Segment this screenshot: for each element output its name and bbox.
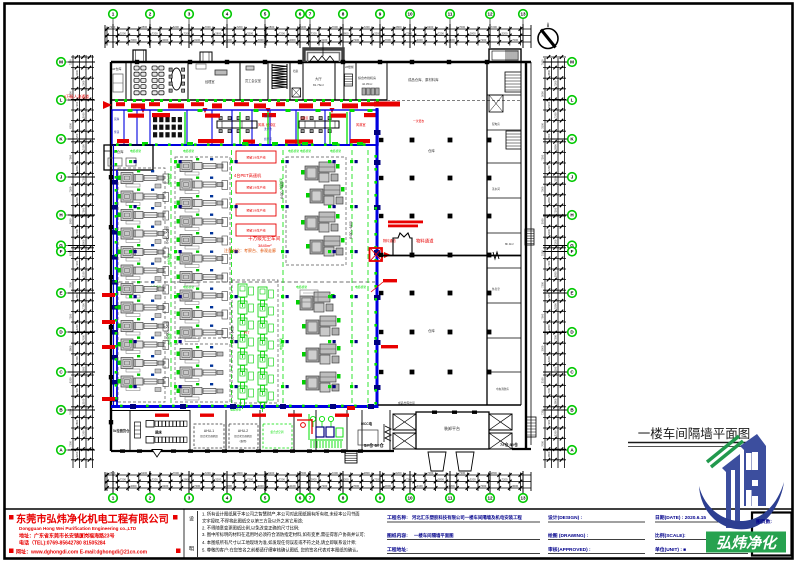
svg-text:5: 5 (264, 12, 267, 17)
svg-text:7200: 7200 (184, 32, 190, 36)
svg-text:2800: 2800 (547, 69, 551, 75)
svg-text:6200: 6200 (547, 228, 551, 234)
svg-text:比例(SCALE):: 比例(SCALE): (655, 532, 686, 539)
svg-text:2800: 2800 (69, 345, 73, 351)
svg-text:7200: 7200 (541, 281, 545, 287)
svg-text:7000: 7000 (300, 471, 306, 475)
svg-text:J: J (60, 175, 63, 180)
svg-text:7200: 7200 (332, 471, 338, 475)
svg-text:地址：广东省东莞市长安镇厦岗福海路23号: 地址：广东省东莞市长安镇厦岗福海路23号 (19, 533, 115, 540)
svg-text:传递: 传递 (114, 130, 120, 134)
svg-text:7200: 7200 (247, 478, 253, 482)
svg-text:2800: 2800 (215, 32, 221, 36)
svg-text:3200: 3200 (554, 175, 558, 181)
svg-text:电缆桥架: 电缆桥架 (296, 285, 307, 289)
svg-text:审核(APPROVED) :: 审核(APPROVED) : (548, 546, 591, 553)
svg-text:L: L (60, 98, 63, 103)
svg-text:注意对位：考察台、参观走廊: 注意对位：考察台、参观走廊 (224, 247, 276, 253)
svg-text:9: 9 (379, 496, 382, 501)
svg-text:6400⇔6400: 6400⇔6400 (231, 326, 235, 344)
svg-text:42.35m²: 42.35m² (362, 82, 372, 86)
svg-text:7200: 7200 (502, 478, 508, 482)
svg-text:7000: 7000 (226, 484, 232, 488)
svg-text:明: 明 (189, 547, 194, 553)
svg-text:3200: 3200 (75, 197, 79, 203)
svg-text:12: 12 (487, 496, 493, 501)
svg-text:7200: 7200 (491, 25, 497, 29)
svg-text:7000: 7000 (512, 38, 518, 42)
svg-text:3#仓库: 3#仓库 (112, 66, 121, 71)
svg-text:7000: 7000 (258, 38, 264, 42)
svg-text:电缆桥架: 电缆桥架 (130, 149, 141, 153)
svg-text:7200: 7200 (75, 356, 79, 362)
svg-text:3200: 3200 (343, 478, 349, 482)
svg-text:7200: 7200 (554, 80, 558, 86)
svg-text:6400⇔6400: 6400⇔6400 (349, 221, 353, 239)
svg-text:物料通道: 物料通道 (416, 238, 434, 245)
svg-text:3200: 3200 (470, 478, 476, 482)
svg-text:2800: 2800 (109, 471, 115, 475)
svg-text:5. 尊敬的客户:在您签名之前都请仔细审核确认图纸, 您的签: 5. 尊敬的客户:在您签名之前都请仔细审核确认图纸, 您的签名代表对本图纸的确认… (202, 547, 361, 554)
svg-text:4: 4 (226, 12, 229, 17)
svg-text:组合式空调机组: 组合式空调机组 (200, 434, 218, 438)
svg-text:5#拉链货仓: 5#拉链货仓 (113, 428, 130, 433)
svg-text:3100: 3100 (82, 271, 86, 277)
svg-text:6200: 6200 (69, 377, 73, 383)
svg-text:3100: 3100 (82, 144, 86, 150)
svg-text:文字授权,不得将此图纸交以第三方及以外之其它用途;: 文字授权,不得将此图纸交以第三方及以外之其它用途; (202, 518, 303, 525)
svg-text:2800: 2800 (470, 32, 476, 36)
svg-text:7#仓 8#仓: 7#仓 8#仓 (500, 441, 519, 447)
svg-text:10: 10 (407, 496, 413, 501)
svg-text:3000: 3000 (541, 345, 545, 351)
svg-text:7200: 7200 (321, 484, 327, 488)
svg-text:预留1/8生产线: 预留1/8生产线 (246, 155, 265, 160)
svg-text:综合布线机房: 综合布线机房 (358, 75, 376, 80)
svg-text:7000: 7000 (480, 484, 486, 488)
svg-text:货淋: 货淋 (114, 117, 120, 121)
svg-text:E: E (570, 291, 573, 296)
svg-text:7000: 7000 (541, 440, 545, 446)
svg-text:3: 3 (188, 496, 191, 501)
svg-text:预留1/8生产线: 预留1/8生产线 (246, 185, 265, 190)
svg-text:网址：www.dghongdi.com E-mail:dg: 网址：www.dghongdi.com E-mail:dghongdi@21cn… (16, 549, 148, 556)
svg-text:弘炜净化: 弘炜净化 (716, 535, 778, 552)
svg-text:7200: 7200 (205, 471, 211, 475)
svg-text:3100: 3100 (321, 38, 327, 42)
svg-text:电缆桥架: 电缆桥架 (183, 285, 194, 289)
svg-text:3000: 3000 (385, 484, 391, 488)
svg-text:7200: 7200 (449, 484, 455, 488)
svg-text:7200: 7200 (374, 478, 380, 482)
svg-text:电缆桥架: 电缆桥架 (355, 285, 366, 289)
svg-text:7200: 7200 (547, 165, 551, 171)
svg-text:1: 1 (112, 496, 115, 501)
svg-text:6200: 6200 (141, 471, 147, 475)
svg-text:3000: 3000 (82, 239, 86, 245)
svg-text:裁床: 裁床 (154, 430, 162, 435)
svg-text:7200: 7200 (194, 484, 200, 488)
svg-text:12: 12 (487, 12, 493, 17)
svg-text:13: 13 (520, 12, 526, 17)
svg-text:中央消防库: 中央消防库 (496, 387, 509, 391)
svg-text:3200: 3200 (554, 303, 558, 309)
svg-text:电话（TEL):0769-85642780 81505284: 电话（TEL):0769-85642780 81505284 (19, 540, 106, 547)
svg-text:7200: 7200 (554, 366, 558, 372)
svg-text:仓库: 仓库 (428, 148, 435, 153)
svg-text:4: 4 (226, 496, 229, 501)
svg-text:2800: 2800 (141, 25, 147, 29)
svg-text:3100: 3100 (82, 398, 86, 404)
svg-text:7200: 7200 (311, 32, 317, 36)
svg-text:2800: 2800 (75, 292, 79, 298)
svg-text:电缆桥架: 电缆桥架 (278, 338, 283, 350)
svg-text:2800: 2800 (554, 144, 558, 150)
svg-text:3000: 3000 (82, 112, 86, 118)
svg-text:7000: 7000 (69, 154, 73, 160)
svg-text:AHU-1: AHU-1 (204, 429, 214, 433)
svg-text:6: 6 (299, 496, 302, 501)
svg-text:3: 3 (188, 12, 191, 17)
svg-text:7200: 7200 (109, 25, 115, 29)
svg-text:装卸平台: 装卸平台 (444, 425, 460, 431)
svg-text:3100: 3100 (541, 250, 545, 256)
svg-text:5万级人流通道: 5万级人流通道 (64, 94, 89, 99)
svg-text:经理室: 经理室 (205, 79, 215, 84)
svg-text:3100: 3100 (417, 484, 423, 488)
svg-text:日期(DATE) : 2020.6.15: 日期(DATE) : 2020.6.15 (655, 514, 706, 521)
svg-text:洁具间: 洁具间 (264, 114, 272, 118)
svg-text:河北汇乐塑胶科技有限公司一楼车间隔墙及机电安装工程: 河北汇乐塑胶科技有限公司一楼车间隔墙及机电安装工程 (412, 514, 522, 521)
svg-text:7200: 7200 (438, 32, 444, 36)
svg-text:3000: 3000 (131, 484, 137, 488)
svg-text:3100: 3100 (541, 122, 545, 128)
svg-text:7000: 7000 (173, 471, 179, 475)
svg-text:7200: 7200 (82, 175, 86, 181)
svg-text:7000: 7000 (541, 186, 545, 192)
svg-text:3000: 3000 (541, 218, 545, 224)
svg-text:7200: 7200 (152, 478, 158, 482)
svg-text:2800: 2800 (547, 197, 551, 203)
svg-text:7200: 7200 (554, 334, 558, 340)
svg-text:7200: 7200 (75, 133, 79, 139)
svg-text:7000: 7000 (541, 59, 545, 65)
svg-text:3100: 3100 (541, 377, 545, 383)
svg-text:7200: 7200 (69, 186, 73, 192)
svg-text:7000: 7000 (332, 25, 338, 29)
svg-text:7200: 7200 (82, 430, 86, 436)
svg-text:10: 10 (407, 12, 413, 17)
svg-text:风淋室: 风淋室 (356, 122, 366, 127)
svg-text:7: 7 (309, 12, 312, 17)
svg-text:3100: 3100 (194, 38, 200, 42)
svg-text:2800: 2800 (491, 471, 497, 475)
svg-text:图纸内容:: 图纸内容: (387, 532, 408, 539)
svg-text:MCC电: MCC电 (361, 421, 373, 426)
svg-text:休息室: 休息室 (492, 287, 500, 291)
svg-text:3200: 3200 (374, 32, 380, 36)
svg-text:2800: 2800 (75, 165, 79, 171)
svg-text:7000: 7000 (547, 133, 551, 139)
svg-text:2: 2 (149, 496, 152, 501)
svg-text:7200: 7200 (406, 32, 412, 36)
svg-text:7000: 7000 (82, 207, 86, 213)
svg-text:一楼车间隔墙平面图: 一楼车间隔墙平面图 (414, 532, 454, 539)
svg-text:预留1/8生产线: 预留1/8生产线 (246, 228, 265, 233)
svg-text:6400⇔6400: 6400⇔6400 (280, 181, 284, 199)
svg-text:7000: 7000 (459, 25, 465, 29)
svg-text:绘图 (DRAWING) :: 绘图 (DRAWING) : (547, 532, 589, 539)
svg-text:7000: 7000 (205, 25, 211, 29)
svg-text:7200: 7200 (353, 38, 359, 42)
svg-text:7200: 7200 (541, 154, 545, 160)
svg-text:3200: 3200 (554, 430, 558, 436)
svg-text:6200: 6200 (268, 471, 274, 475)
svg-text:Dongguan Hong Wei Purification: Dongguan Hong Wei Purification Engineeri… (19, 526, 137, 531)
svg-text:7200: 7200 (120, 478, 126, 482)
svg-text:1: 1 (112, 12, 115, 17)
svg-text:3000: 3000 (82, 366, 86, 372)
svg-text:2800: 2800 (554, 398, 558, 404)
svg-text:6200: 6200 (300, 25, 306, 29)
svg-text:2800: 2800 (237, 471, 243, 475)
svg-text:3000: 3000 (541, 91, 545, 97)
svg-text:3000: 3000 (290, 38, 296, 42)
svg-text:7000: 7000 (547, 260, 551, 266)
svg-text:4. 本图纸所有尺寸以工地现场为准,如发现任何误差或不符之处: 4. 本图纸所有尺寸以工地现场为准,如发现任何误差或不符之处,请立即联系设计师; (202, 539, 356, 546)
svg-text:7000: 7000 (82, 334, 86, 340)
svg-text:5: 5 (264, 496, 267, 501)
svg-text:2800: 2800 (343, 32, 349, 36)
svg-text:11: 11 (448, 12, 453, 17)
svg-text:M: M (570, 60, 574, 65)
svg-text:F: F (571, 249, 574, 254)
svg-text:PIT: PIT (244, 331, 250, 335)
svg-text:一次更衣: 一次更衣 (413, 119, 424, 123)
svg-text:2800: 2800 (396, 25, 402, 29)
svg-text:3200: 3200 (247, 32, 253, 36)
svg-text:7000: 7000 (427, 471, 433, 475)
svg-text:物料通道: 物料通道 (383, 238, 397, 243)
svg-text:L: L (571, 98, 574, 103)
svg-text:11: 11 (448, 496, 453, 501)
svg-text:6400⇔6400: 6400⇔6400 (166, 321, 170, 339)
svg-text:7000: 7000 (82, 80, 86, 86)
svg-text:风淋, 缓冲区: 风淋, 缓冲区 (258, 122, 277, 127)
svg-text:3000: 3000 (162, 38, 168, 42)
svg-text:7200: 7200 (554, 207, 558, 213)
svg-text:7200: 7200 (82, 303, 86, 309)
svg-text:员工会议室: 员工会议室 (245, 78, 261, 83)
svg-text:7200: 7200 (406, 478, 412, 482)
svg-text:电缆桥架: 电缆桥架 (288, 149, 299, 153)
svg-text:单位(UNIT) : ■: 单位(UNIT) : ■ (655, 546, 686, 553)
svg-text:7200: 7200 (75, 260, 79, 266)
svg-text:电缆桥架: 电缆桥架 (300, 149, 311, 153)
svg-text:烘手间: 烘手间 (264, 137, 272, 141)
svg-text:7000: 7000 (69, 281, 73, 287)
svg-text:3000: 3000 (258, 484, 264, 488)
svg-text:7200: 7200 (226, 38, 232, 42)
svg-text:6200: 6200 (69, 250, 73, 256)
svg-text:工程名称:: 工程名称: (387, 514, 408, 521)
svg-text:2800: 2800 (547, 451, 551, 457)
svg-text:2800: 2800 (69, 218, 73, 224)
svg-text:档案: 档案 (293, 69, 299, 73)
svg-text:3200: 3200 (75, 69, 79, 75)
svg-text:7200: 7200 (364, 25, 370, 29)
svg-text:8h.9m²: 8h.9m² (505, 242, 514, 246)
svg-text:3200: 3200 (75, 451, 79, 457)
svg-text:6200: 6200 (547, 101, 551, 107)
svg-text:3. 图中所标明的材料在选用时必须符合消防指定材料,如有变更: 3. 图中所标明的材料在选用时必须符合消防指定材料,如有变更,需征得客户协商并认… (202, 531, 365, 538)
svg-text:7000: 7000 (547, 387, 551, 393)
svg-text:E: E (59, 291, 62, 296)
svg-text:电缆桥架: 电缆桥架 (330, 149, 341, 153)
svg-text:组合式空调机组: 组合式空调机组 (234, 434, 252, 438)
svg-text:2800: 2800 (438, 478, 444, 482)
svg-text:组合式空调: 组合式空调 (271, 430, 284, 434)
svg-text:设计(DESIGN) :: 设计(DESIGN) : (548, 514, 583, 521)
svg-text:7200: 7200 (75, 228, 79, 234)
svg-text:3200: 3200 (502, 32, 508, 36)
svg-text:J: J (571, 175, 574, 180)
svg-text:3200: 3200 (120, 32, 126, 36)
svg-text:2800: 2800 (75, 419, 79, 425)
svg-text:配电房: 配电房 (492, 122, 500, 126)
svg-text:7200: 7200 (554, 112, 558, 118)
svg-text:F: F (60, 249, 63, 254)
svg-text:7200: 7200 (554, 239, 558, 245)
svg-text:预留1/8生产线: 预留1/8生产线 (246, 208, 265, 213)
svg-text:7200: 7200 (75, 101, 79, 107)
svg-text:电缆桥架: 电缆桥架 (183, 149, 194, 153)
svg-text:大厅: 大厅 (315, 76, 322, 81)
svg-text:3000: 3000 (417, 38, 423, 42)
svg-text:7200: 7200 (75, 387, 79, 393)
svg-text:2800: 2800 (547, 324, 551, 330)
svg-text:试鞋区: 试鞋区 (300, 116, 309, 120)
svg-text:7000: 7000 (131, 38, 137, 42)
svg-text:6200: 6200 (547, 356, 551, 362)
svg-text:6200: 6200 (396, 471, 402, 475)
svg-text:2800: 2800 (364, 471, 370, 475)
svg-text:2. 不得随意变更图纸比例,以免改变正确的尺寸比例;: 2. 不得随意变更图纸比例,以免改变正确的尺寸比例; (202, 525, 299, 532)
svg-text:7000: 7000 (69, 409, 73, 415)
svg-text:东莞市弘炜净化机电工程有限公司: 东莞市弘炜净化机电工程有限公司 (16, 513, 169, 526)
svg-text:3200: 3200 (215, 478, 221, 482)
svg-text:8: 8 (342, 12, 345, 17)
svg-text:7200: 7200 (69, 440, 73, 446)
svg-text:茶水间: 茶水间 (492, 187, 500, 191)
svg-text:7000: 7000 (385, 38, 391, 42)
svg-text:7000: 7000 (353, 484, 359, 488)
svg-text:7000: 7000 (541, 313, 545, 319)
svg-text:7200: 7200 (541, 409, 545, 415)
svg-text:工程地址:: 工程地址: (387, 546, 408, 553)
svg-text:仓库: 仓库 (428, 328, 435, 333)
svg-text:5#仓 6#仓: 5#仓 6#仓 (364, 442, 384, 449)
svg-text:十万级无尘车间: 十万级无尘车间 (248, 235, 281, 242)
svg-text:M: M (59, 60, 63, 65)
svg-text:6200: 6200 (173, 25, 179, 29)
svg-text:AHU-2: AHU-2 (238, 429, 248, 433)
svg-text:4台PET高速机: 4台PET高速机 (234, 172, 262, 179)
svg-text:7200: 7200 (480, 38, 486, 42)
svg-text:洗手池: 洗手池 (264, 127, 272, 131)
svg-text:6400⇔6400: 6400⇔6400 (166, 226, 170, 244)
svg-text:3200: 3200 (75, 324, 79, 330)
svg-text:1. 所有设计图纸属于本公司之智慧财产,本公司对此图纸拥有所: 1. 所有设计图纸属于本公司之智慧财产,本公司对此图纸拥有所有权,未经本公司书面 (202, 511, 360, 518)
svg-text:(备用): (备用) (240, 439, 247, 443)
svg-text:2: 2 (149, 12, 152, 17)
svg-text:图页数:: 图页数: (756, 518, 772, 525)
svg-text:成品仓库、原材料库: 成品仓库、原材料库 (408, 77, 439, 82)
svg-text:9: 9 (379, 12, 382, 17)
svg-text:设: 设 (189, 516, 194, 523)
svg-text:2800: 2800 (554, 271, 558, 277)
svg-text:7200: 7200 (69, 313, 73, 319)
svg-text:6200: 6200 (69, 122, 73, 128)
svg-text:81.76m²: 81.76m² (313, 83, 324, 87)
svg-text:7200: 7200 (237, 25, 243, 29)
svg-text:7200: 7200 (547, 419, 551, 425)
svg-text:3100: 3100 (162, 484, 168, 488)
svg-text:7200: 7200 (279, 478, 285, 482)
svg-text:8: 8 (342, 496, 345, 501)
svg-text:7200: 7200 (459, 471, 465, 475)
svg-text:2800: 2800 (311, 478, 317, 482)
svg-text:3100: 3100 (290, 484, 296, 488)
svg-text:3100: 3100 (449, 38, 455, 42)
svg-text:2#楼梯: 2#楼梯 (345, 65, 354, 69)
svg-text:2800: 2800 (184, 478, 190, 482)
svg-text:3000: 3000 (512, 484, 518, 488)
svg-text:7200: 7200 (152, 32, 158, 36)
svg-text:7200: 7200 (279, 32, 285, 36)
svg-text:7200: 7200 (547, 292, 551, 298)
svg-text:6: 6 (299, 12, 302, 17)
svg-text:6200: 6200 (427, 25, 433, 29)
svg-text:13: 13 (520, 496, 526, 501)
svg-text:7: 7 (309, 496, 312, 501)
svg-text:2800: 2800 (268, 25, 274, 29)
